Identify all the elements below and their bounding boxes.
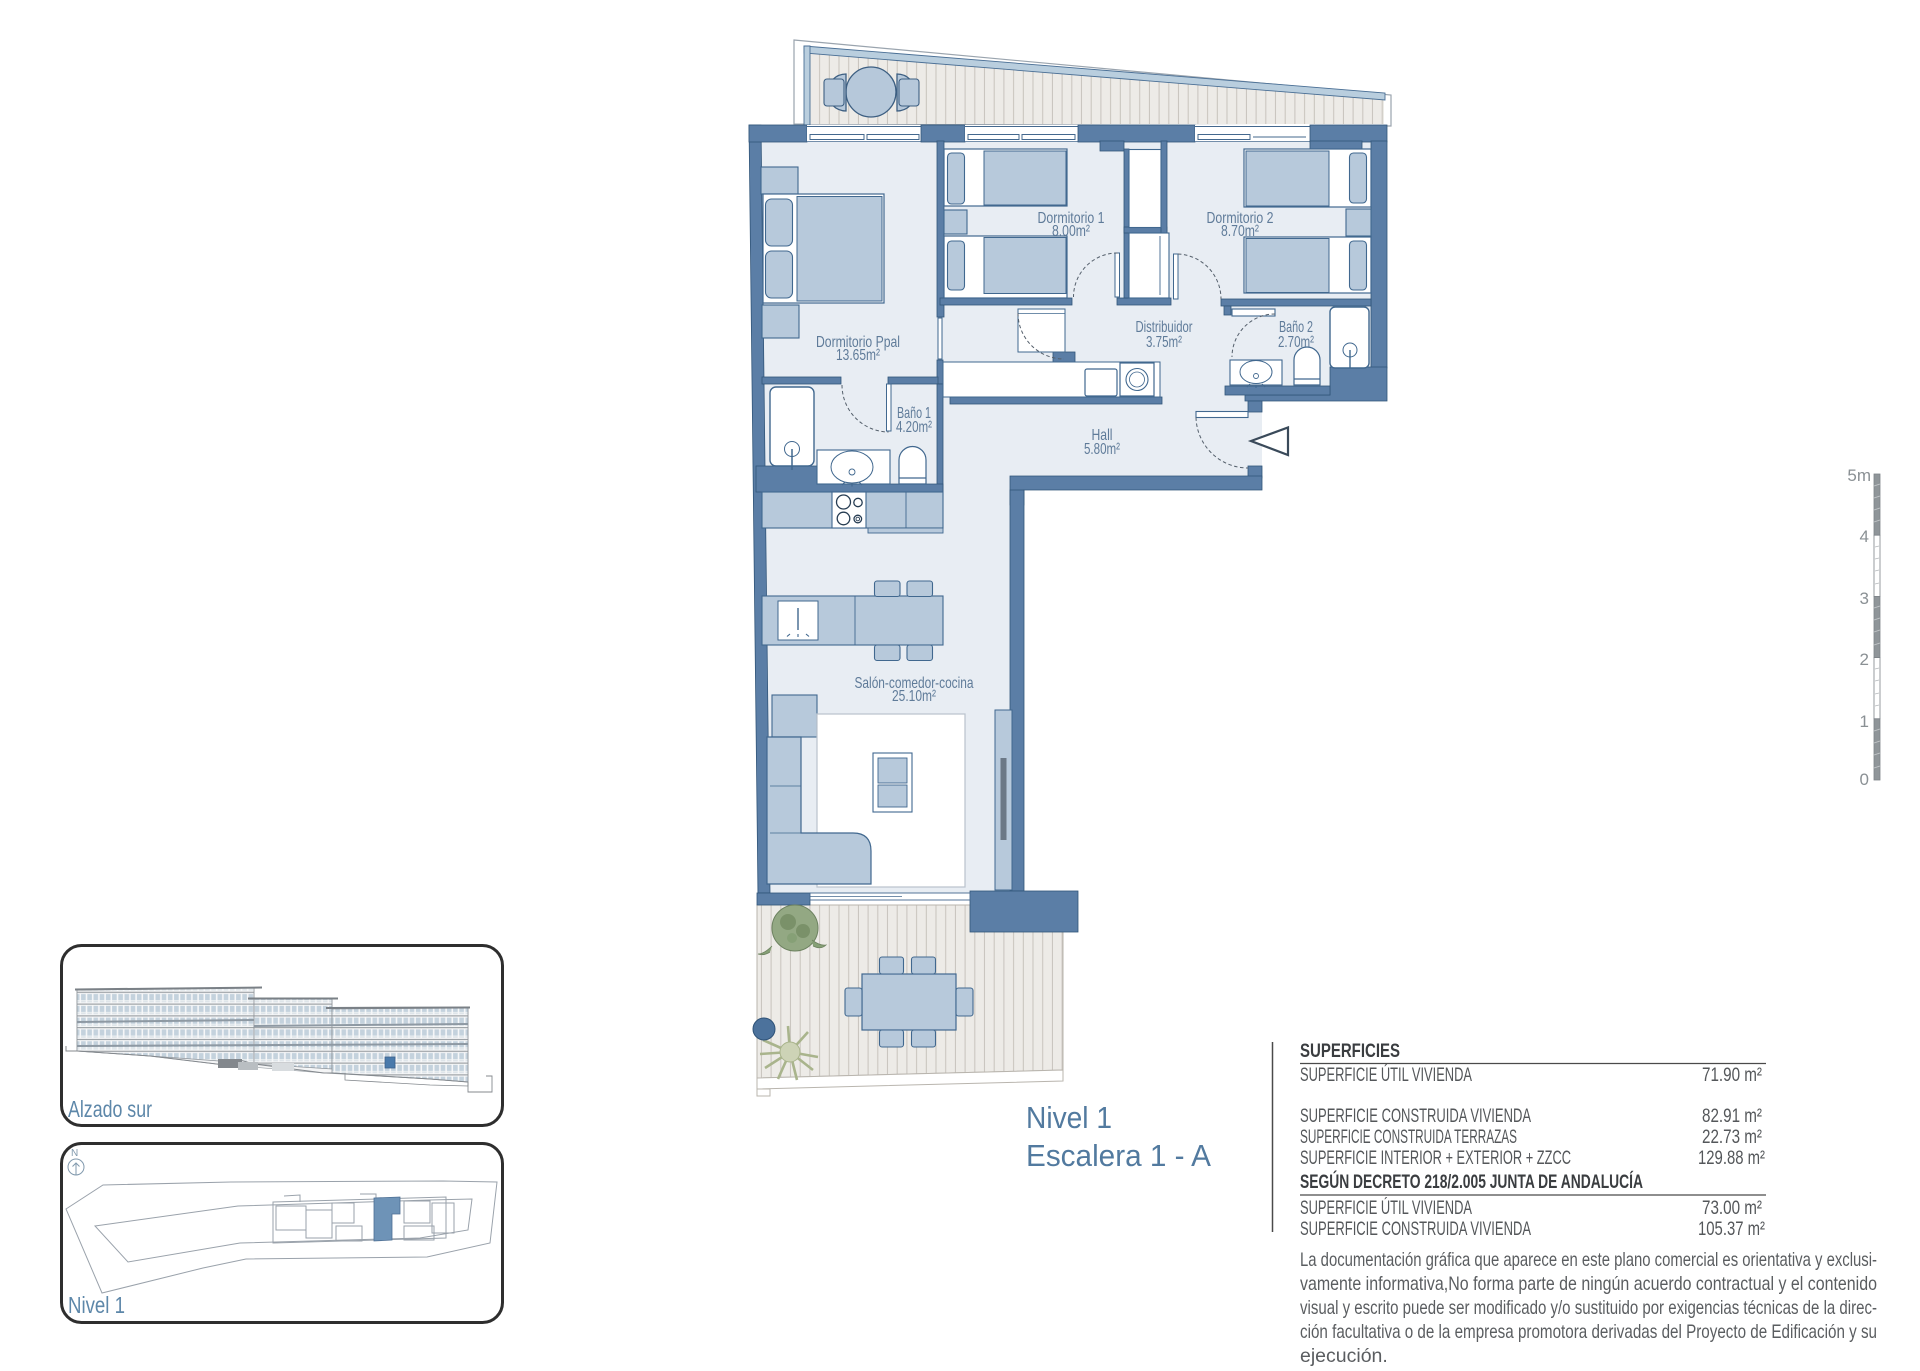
- svg-text:129.88 m²: 129.88 m²: [1698, 1147, 1765, 1169]
- svg-text:SUPERFICIE INTERIOR + EXTERIOR: SUPERFICIE INTERIOR + EXTERIOR + ZZCC: [1300, 1147, 1571, 1169]
- svg-text:71.90 m²: 71.90 m²: [1702, 1064, 1762, 1086]
- svg-text:3.75m²: 3.75m²: [1146, 334, 1182, 351]
- svg-text:SUPERFICIE ÚTIL VIVIENDA: SUPERFICIE ÚTIL VIVIENDA: [1300, 1196, 1472, 1219]
- svg-text:8.00m²: 8.00m²: [1052, 223, 1091, 240]
- svg-text:3: 3: [1860, 589, 1869, 608]
- svg-text:1: 1: [1860, 712, 1869, 731]
- svg-text:2.70m²: 2.70m²: [1278, 334, 1314, 351]
- svg-text:4.20m²: 4.20m²: [896, 419, 932, 436]
- svg-text:La documentación gráfica que a: La documentación gráfica que aparece en …: [1300, 1249, 1877, 1271]
- svg-text:N: N: [71, 1148, 78, 1159]
- svg-text:SEGÚN DECRETO 218/2.005 JUNTA: SEGÚN DECRETO 218/2.005 JUNTA DE ANDALUC…: [1300, 1169, 1643, 1193]
- svg-text:82.91 m²: 82.91 m²: [1702, 1105, 1762, 1127]
- svg-text:105.37 m²: 105.37 m²: [1698, 1218, 1765, 1240]
- svg-text:Nivel 1: Nivel 1: [68, 1292, 125, 1318]
- svg-text:visual y escrito puede ser mod: visual y escrito puede ser modificado y/…: [1300, 1297, 1877, 1319]
- svg-text:Escalera 1 - A: Escalera 1 - A: [1026, 1138, 1211, 1173]
- svg-text:SUPERFICIE CONSTRUIDA VIVIENDA: SUPERFICIE CONSTRUIDA VIVIENDA: [1300, 1105, 1531, 1127]
- svg-text:ción facultativa o de la empre: ción facultativa o de la empresa promoto…: [1300, 1321, 1877, 1343]
- svg-text:22.73 m²: 22.73 m²: [1702, 1126, 1762, 1148]
- svg-text:vamente informativa,No forma p: vamente informativa,No forma parte de ni…: [1300, 1273, 1877, 1295]
- svg-text:Alzado sur: Alzado sur: [68, 1096, 152, 1122]
- svg-text:SUPERFICIES: SUPERFICIES: [1300, 1040, 1400, 1062]
- svg-text:25.10m²: 25.10m²: [892, 688, 936, 705]
- svg-text:SUPERFICIE CONSTRUIDA VIVIENDA: SUPERFICIE CONSTRUIDA VIVIENDA: [1300, 1218, 1531, 1240]
- svg-text:SUPERFICIE CONSTRUIDA TERRAZAS: SUPERFICIE CONSTRUIDA TERRAZAS: [1300, 1126, 1517, 1148]
- svg-text:4: 4: [1860, 527, 1869, 546]
- svg-text:0: 0: [1860, 770, 1869, 789]
- svg-text:8.70m²: 8.70m²: [1221, 223, 1260, 240]
- svg-text:5.80m²: 5.80m²: [1084, 441, 1120, 458]
- svg-text:SUPERFICIE ÚTIL VIVIENDA: SUPERFICIE ÚTIL VIVIENDA: [1300, 1063, 1472, 1086]
- svg-text:2: 2: [1860, 650, 1869, 669]
- svg-text:5m: 5m: [1847, 466, 1871, 485]
- svg-text:13.65m²: 13.65m²: [836, 347, 880, 364]
- svg-text:ejecución.: ejecución.: [1300, 1345, 1388, 1367]
- svg-text:73.00 m²: 73.00 m²: [1702, 1197, 1762, 1219]
- svg-text:Nivel 1: Nivel 1: [1026, 1100, 1112, 1135]
